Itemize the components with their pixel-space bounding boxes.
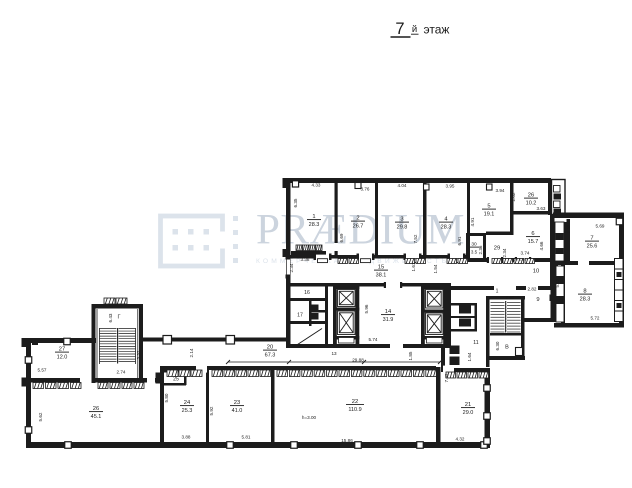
- svg-text:этаж: этаж: [424, 22, 450, 36]
- svg-text:28.3: 28.3: [441, 225, 452, 231]
- svg-text:5: 5: [487, 204, 490, 210]
- svg-text:8: 8: [583, 289, 586, 295]
- svg-text:В: В: [505, 345, 509, 351]
- svg-text:28.3: 28.3: [580, 297, 591, 303]
- svg-text:2.74: 2.74: [117, 370, 126, 375]
- svg-text:Г: Г: [118, 315, 121, 321]
- svg-text:26: 26: [528, 193, 534, 199]
- svg-text:1.61: 1.61: [411, 262, 416, 271]
- svg-text:28.3: 28.3: [309, 222, 320, 228]
- svg-text:16: 16: [304, 290, 310, 296]
- svg-text:3.63: 3.63: [537, 206, 546, 211]
- svg-text:25.6: 25.6: [587, 244, 598, 250]
- svg-text:22: 22: [352, 399, 358, 405]
- svg-text:5.96: 5.96: [364, 304, 369, 313]
- svg-text:29: 29: [494, 246, 500, 252]
- svg-text:10: 10: [533, 269, 539, 275]
- svg-text:3.38: 3.38: [301, 257, 310, 262]
- svg-text:14: 14: [385, 309, 392, 315]
- svg-text:19.1: 19.1: [484, 212, 495, 218]
- svg-text:29.0: 29.0: [463, 410, 474, 416]
- svg-text:29.88: 29.88: [352, 358, 364, 363]
- svg-text:1.85: 1.85: [408, 351, 413, 360]
- svg-text:5.92: 5.92: [209, 406, 214, 415]
- svg-text:3.88: 3.88: [182, 435, 191, 440]
- svg-text:7.43: 7.43: [444, 373, 449, 382]
- svg-text:2.36: 2.36: [478, 245, 483, 254]
- svg-text:26: 26: [93, 406, 99, 412]
- svg-text:1: 1: [312, 214, 315, 220]
- svg-text:4.91: 4.91: [470, 217, 475, 226]
- svg-text:4.04: 4.04: [398, 183, 407, 188]
- svg-text:3.94: 3.94: [496, 188, 505, 193]
- svg-text:31.9: 31.9: [383, 317, 394, 323]
- svg-text:27: 27: [59, 347, 65, 353]
- svg-text:2.82: 2.82: [528, 287, 537, 292]
- svg-text:25.3: 25.3: [182, 408, 193, 414]
- svg-text:15.86: 15.86: [341, 438, 353, 443]
- svg-text:4.52: 4.52: [566, 224, 571, 233]
- svg-text:45.1: 45.1: [91, 414, 102, 420]
- svg-text:11: 11: [473, 340, 478, 346]
- svg-text:5.81: 5.81: [242, 435, 251, 440]
- svg-text:6.35: 6.35: [293, 198, 298, 207]
- svg-text:2.60: 2.60: [506, 295, 515, 300]
- svg-text:3.76: 3.76: [361, 187, 370, 192]
- svg-text:6.69: 6.69: [339, 233, 344, 242]
- svg-text:1.54: 1.54: [433, 264, 438, 273]
- svg-text:5.72: 5.72: [591, 316, 600, 321]
- svg-text:3: 3: [400, 217, 403, 223]
- svg-text:й: й: [412, 24, 417, 35]
- svg-text:5.12: 5.12: [555, 278, 560, 287]
- svg-text:6.91: 6.91: [435, 408, 440, 417]
- svg-text:7: 7: [590, 236, 593, 242]
- svg-text:5.57: 5.57: [38, 368, 47, 373]
- svg-text:24: 24: [184, 400, 191, 406]
- svg-text:9: 9: [536, 297, 539, 303]
- svg-text:2.02: 2.02: [511, 192, 516, 201]
- svg-text:50 1.05: 50 1.05: [514, 258, 527, 262]
- svg-text:1: 1: [496, 289, 499, 295]
- svg-text:3.74: 3.74: [521, 251, 530, 256]
- svg-text:5.69: 5.69: [596, 224, 605, 229]
- svg-text:30: 30: [471, 242, 477, 248]
- svg-text:2: 2: [356, 216, 359, 222]
- svg-text:7: 7: [395, 20, 404, 38]
- svg-text:2.34: 2.34: [502, 248, 507, 257]
- svg-text:h=3.00: h=3.00: [302, 415, 317, 420]
- svg-text:2.14: 2.14: [189, 348, 194, 357]
- svg-text:4.66: 4.66: [539, 241, 544, 250]
- svg-text:6.30: 6.30: [495, 341, 500, 350]
- svg-text:25: 25: [173, 377, 179, 383]
- svg-text:6.91: 6.91: [457, 236, 462, 245]
- svg-text:21: 21: [465, 402, 471, 408]
- svg-text:110.9: 110.9: [348, 407, 361, 413]
- svg-text:7.52: 7.52: [413, 234, 418, 243]
- svg-text:3.16: 3.16: [520, 302, 525, 311]
- svg-text:3.32: 3.32: [136, 350, 141, 359]
- svg-text:10.2: 10.2: [526, 201, 537, 207]
- svg-text:20: 20: [267, 345, 273, 351]
- svg-text:15: 15: [378, 265, 384, 271]
- svg-text:5.62: 5.62: [38, 412, 43, 421]
- svg-text:26.7: 26.7: [353, 224, 364, 230]
- svg-text:13: 13: [331, 351, 337, 356]
- svg-text:38.1: 38.1: [376, 273, 387, 279]
- svg-text:67.3: 67.3: [265, 353, 276, 359]
- svg-text:5.74: 5.74: [369, 337, 378, 342]
- svg-text:29.8: 29.8: [397, 225, 408, 231]
- svg-text:3.5: 3.5: [471, 250, 478, 255]
- svg-text:5.80: 5.80: [164, 393, 169, 402]
- svg-text:6.43: 6.43: [108, 313, 113, 322]
- svg-text:2.34: 2.34: [289, 263, 294, 272]
- svg-text:4.33: 4.33: [312, 183, 321, 188]
- svg-text:6: 6: [531, 231, 534, 237]
- svg-text:12.0: 12.0: [57, 355, 68, 361]
- svg-text:41.0: 41.0: [232, 408, 243, 414]
- svg-text:23: 23: [234, 400, 240, 406]
- svg-text:15.7: 15.7: [528, 239, 539, 245]
- svg-text:4.32: 4.32: [456, 437, 465, 442]
- svg-text:17: 17: [297, 313, 303, 319]
- svg-text:1.64: 1.64: [467, 352, 472, 361]
- svg-text:3.95: 3.95: [446, 184, 455, 189]
